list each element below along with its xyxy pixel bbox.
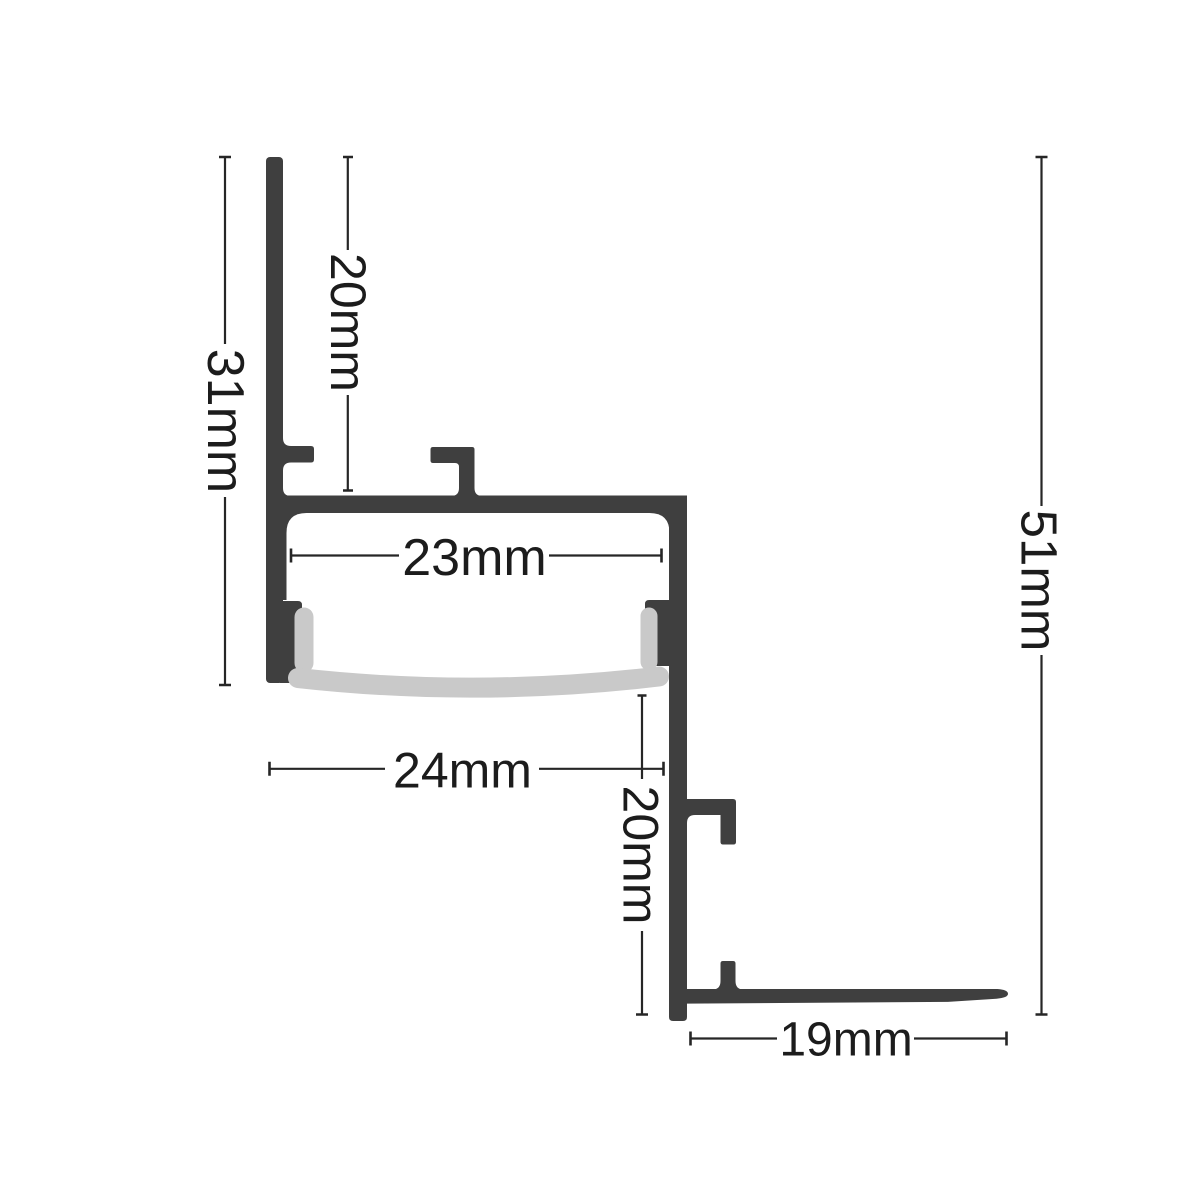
svg-text:19mm: 19mm (779, 1014, 912, 1067)
svg-text:51mm: 51mm (1011, 510, 1068, 652)
svg-text:20mm: 20mm (613, 786, 669, 925)
svg-text:31mm: 31mm (196, 349, 254, 493)
svg-text:20mm: 20mm (320, 253, 376, 392)
svg-text:24mm: 24mm (393, 743, 532, 799)
svg-text:23mm: 23mm (402, 529, 546, 587)
